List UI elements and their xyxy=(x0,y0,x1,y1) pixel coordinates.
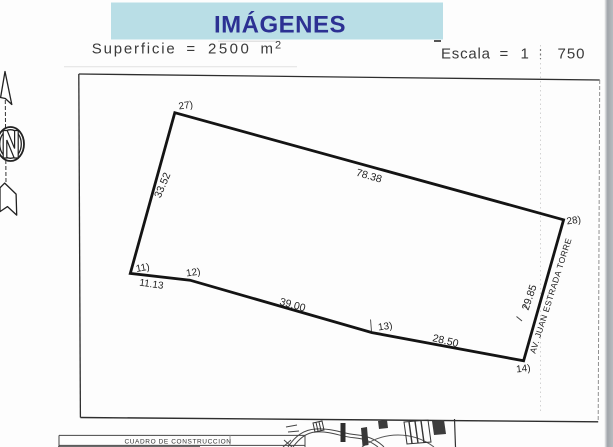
svg-text:1: 1 xyxy=(521,46,529,63)
svg-text:14): 14) xyxy=(516,363,532,375)
svg-text:750: 750 xyxy=(558,46,586,63)
svg-text:11): 11) xyxy=(135,262,150,275)
svg-text:2500: 2500 xyxy=(208,41,251,58)
svg-text:IMÁGENES: IMÁGENES xyxy=(214,11,346,39)
svg-text:27): 27) xyxy=(178,100,194,113)
svg-text:m: m xyxy=(261,41,274,58)
svg-text:12): 12) xyxy=(185,267,201,280)
svg-text:CUADRO DE CONSTRUCCION: CUADRO DE CONSTRUCCION xyxy=(124,439,231,446)
svg-text:13): 13) xyxy=(377,321,393,334)
svg-text:2: 2 xyxy=(275,40,281,52)
svg-text:=: = xyxy=(500,46,509,63)
svg-text:Escala: Escala xyxy=(441,46,491,63)
svg-text:28): 28) xyxy=(566,215,582,228)
svg-text:Superficie: Superficie xyxy=(92,41,177,58)
svg-text:=: = xyxy=(186,41,195,58)
